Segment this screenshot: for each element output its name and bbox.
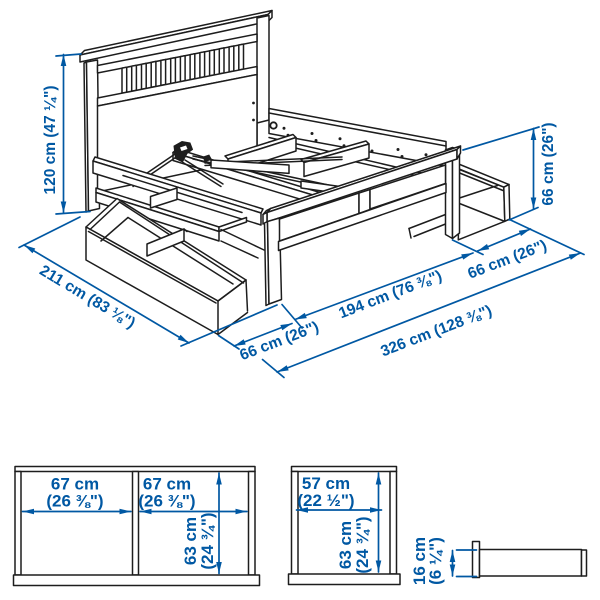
svg-text:(24 ¾"): (24 ¾") [198, 512, 217, 569]
svg-text:66 cm (26"): 66 cm (26") [540, 122, 557, 205]
svg-text:(24 ¾"): (24 ¾") [353, 516, 372, 573]
svg-text:(26 ⅜"): (26 ⅜") [138, 492, 195, 511]
svg-text:(22 ½"): (22 ½") [297, 491, 354, 510]
svg-text:120 cm (47 ¼"): 120 cm (47 ¼") [42, 85, 59, 194]
svg-text:(26 ⅜"): (26 ⅜") [46, 492, 103, 511]
svg-text:(6 ¼"): (6 ¼") [426, 537, 445, 585]
